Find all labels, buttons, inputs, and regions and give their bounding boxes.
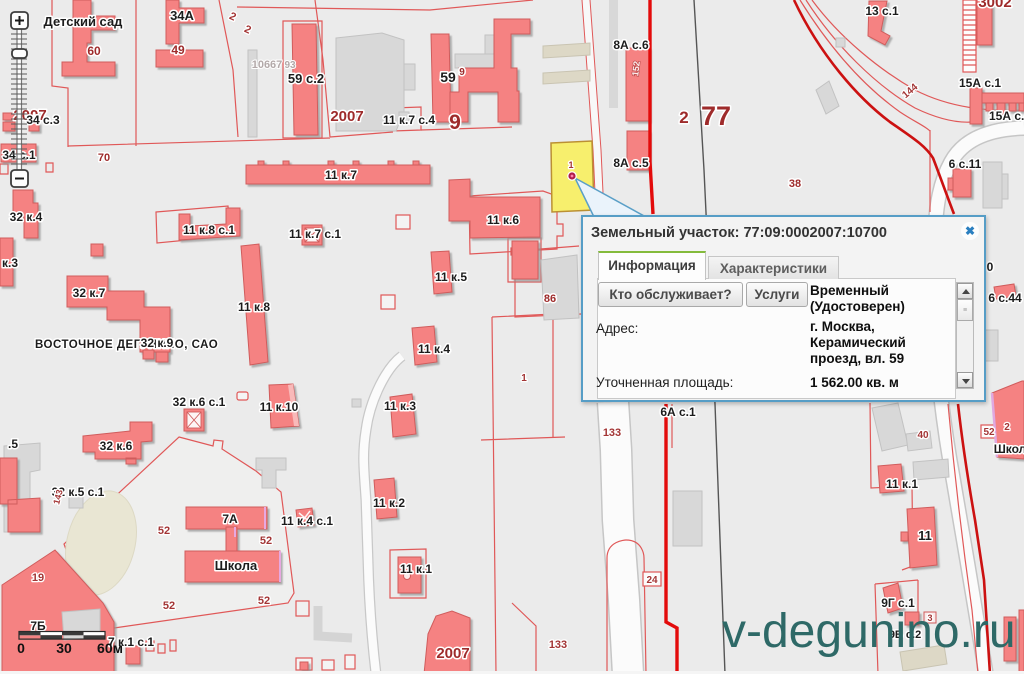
svg-text:0: 0 [987,260,994,274]
svg-text:52: 52 [260,535,272,547]
svg-text:11: 11 [918,528,932,543]
svg-text:40: 40 [917,430,929,441]
svg-text:133: 133 [603,427,621,439]
svg-text:9: 9 [459,67,465,78]
svg-text:11 к.4 с.1: 11 к.4 с.1 [281,514,333,528]
svg-text:2007: 2007 [330,108,363,125]
svg-text:32 к.6: 32 к.6 [100,439,133,453]
svg-text:32 к.9: 32 к.9 [141,336,174,350]
svg-text:11 к.7 с.4: 11 к.7 с.4 [383,113,435,127]
svg-text:.5: .5 [8,437,18,451]
svg-text:34 с.3: 34 с.3 [26,113,60,127]
svg-text:7А: 7А [222,512,238,526]
svg-text:15А с.1: 15А с.1 [959,76,1001,90]
svg-text:0: 0 [17,640,25,656]
svg-text:11 к.1: 11 к.1 [886,477,918,491]
svg-text:34А: 34А [170,8,194,23]
svg-text:13 с.1: 13 с.1 [865,4,899,18]
svg-text:11 к.5: 11 к.5 [435,270,467,284]
svg-text:8А с.6: 8А с.6 [613,38,649,52]
svg-text:59: 59 [440,69,456,85]
svg-text:24: 24 [646,575,658,586]
svg-text:11 к.4: 11 к.4 [418,342,450,356]
svg-text:133: 133 [549,639,567,651]
svg-text:30: 30 [56,640,72,656]
svg-text:11 к.8 с.1: 11 к.8 с.1 [183,223,235,237]
svg-text:52: 52 [258,595,270,607]
svg-text:59 с.2: 59 с.2 [288,71,324,86]
svg-text:32 к.6 с.1: 32 к.6 с.1 [173,395,226,409]
svg-text:11 к.7 с.1: 11 к.7 с.1 [289,227,341,241]
svg-text:11 к.2: 11 к.2 [373,496,405,510]
svg-text:60: 60 [87,44,101,58]
svg-text:Школа: Школа [215,558,258,573]
svg-text:11 к.6: 11 к.6 [487,213,519,227]
svg-text:32 к.7: 32 к.7 [73,286,106,300]
svg-text:15А с.4: 15А с.4 [989,109,1024,123]
svg-text:6 с.11: 6 с.11 [949,157,982,171]
svg-text:3002: 3002 [978,0,1011,11]
svg-text:19: 19 [32,572,44,584]
svg-text:2: 2 [679,108,688,127]
svg-text:32 к.4: 32 к.4 [10,210,43,224]
svg-text:к.3: к.3 [2,256,18,270]
svg-text:Детский сад: Детский сад [44,14,124,29]
svg-text:70: 70 [98,152,110,164]
svg-text:8А с.5: 8А с.5 [613,156,649,170]
svg-text:86: 86 [544,293,556,305]
svg-text:11 к.7: 11 к.7 [325,168,357,182]
svg-text:1: 1 [568,160,573,170]
svg-text:6А с.1: 6А с.1 [660,405,696,419]
svg-text:11 к.3: 11 к.3 [384,399,416,413]
svg-text:38: 38 [789,178,801,190]
svg-text:52: 52 [163,600,175,612]
svg-text:49: 49 [171,43,185,57]
svg-text:9: 9 [449,111,461,134]
svg-text:Школ: Школ [994,442,1024,456]
svg-text:10667: 10667 [252,59,283,71]
svg-text:ВОСТОЧНОЕ ДЕГУНИНО, САО: ВОСТОЧНОЕ ДЕГУНИНО, САО [35,339,218,351]
svg-text:60м: 60м [97,640,123,656]
svg-text:2007: 2007 [436,645,469,662]
svg-text:52: 52 [983,427,995,438]
svg-text:1: 1 [521,373,527,384]
svg-text:2: 2 [1004,422,1010,433]
svg-text:11 к.1: 11 к.1 [400,562,432,576]
svg-text:52: 52 [158,525,170,537]
svg-text:152: 152 [630,61,642,77]
svg-text:77: 77 [701,101,731,131]
svg-text:6 с.44: 6 с.44 [988,291,1022,305]
svg-text:93: 93 [284,60,296,71]
svg-text:11 к.10: 11 к.10 [260,400,299,414]
svg-text:11 к.8: 11 к.8 [238,300,270,314]
